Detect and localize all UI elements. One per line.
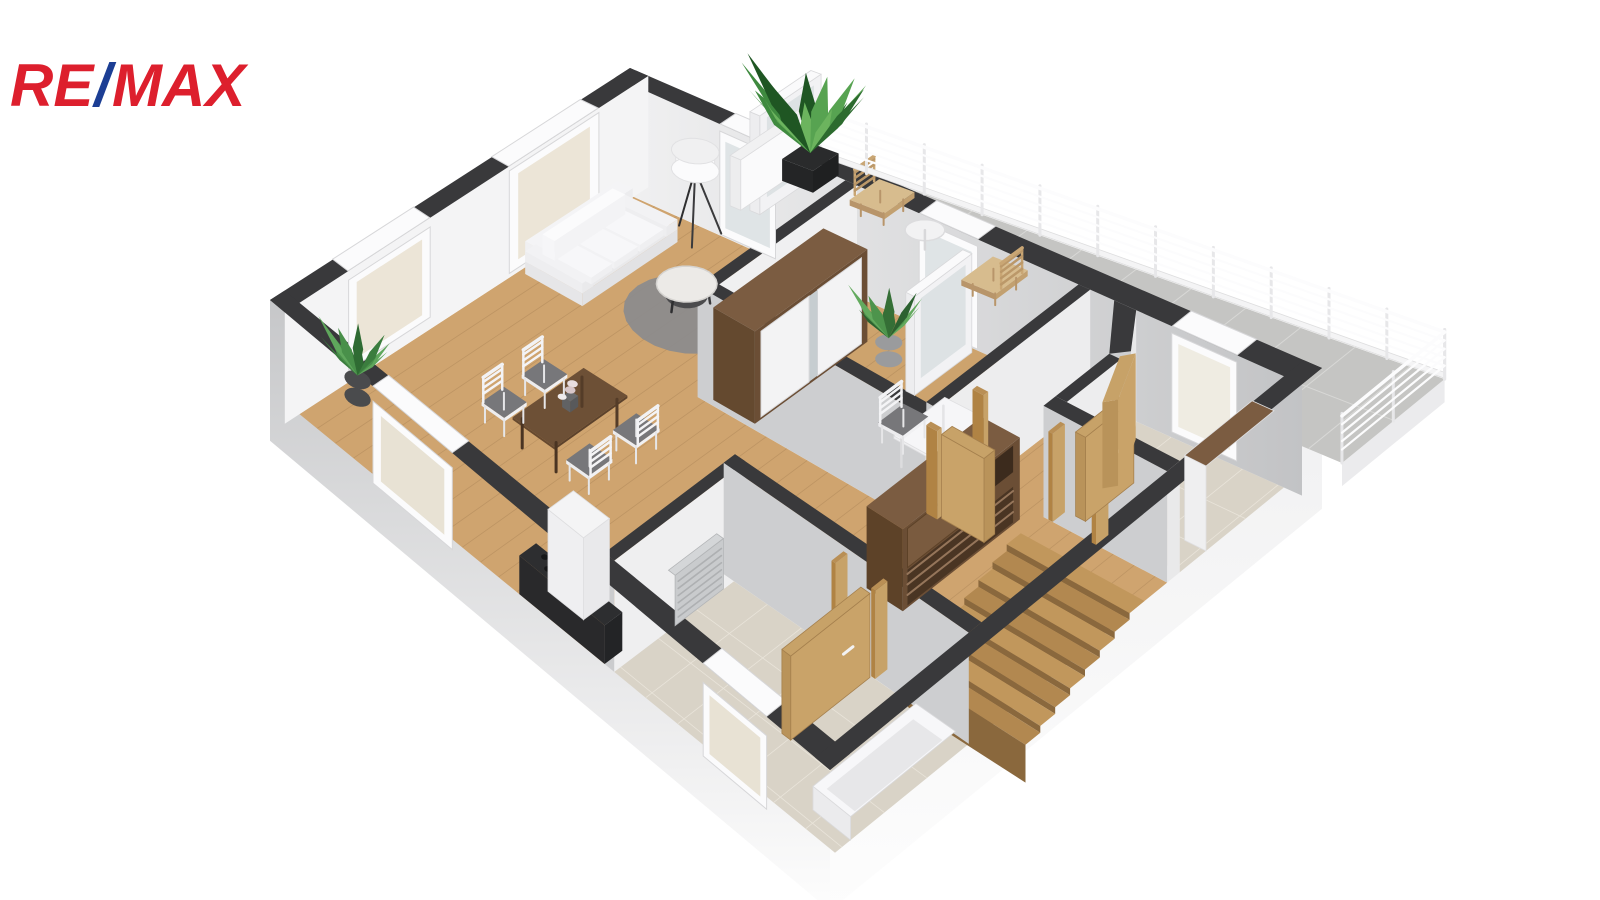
coffee-table-top <box>656 266 717 302</box>
floor-plan-stage: RE/MAX <box>0 0 1600 900</box>
floor-plan-3d <box>0 0 1600 900</box>
entry-door-frame-post-1 <box>1048 422 1065 522</box>
bath-door-frame-post-2 <box>871 578 887 679</box>
floor-lamp-shade <box>672 138 720 183</box>
wardrobe-mirror <box>809 290 817 382</box>
office-door-frame-post-2 <box>926 422 941 520</box>
